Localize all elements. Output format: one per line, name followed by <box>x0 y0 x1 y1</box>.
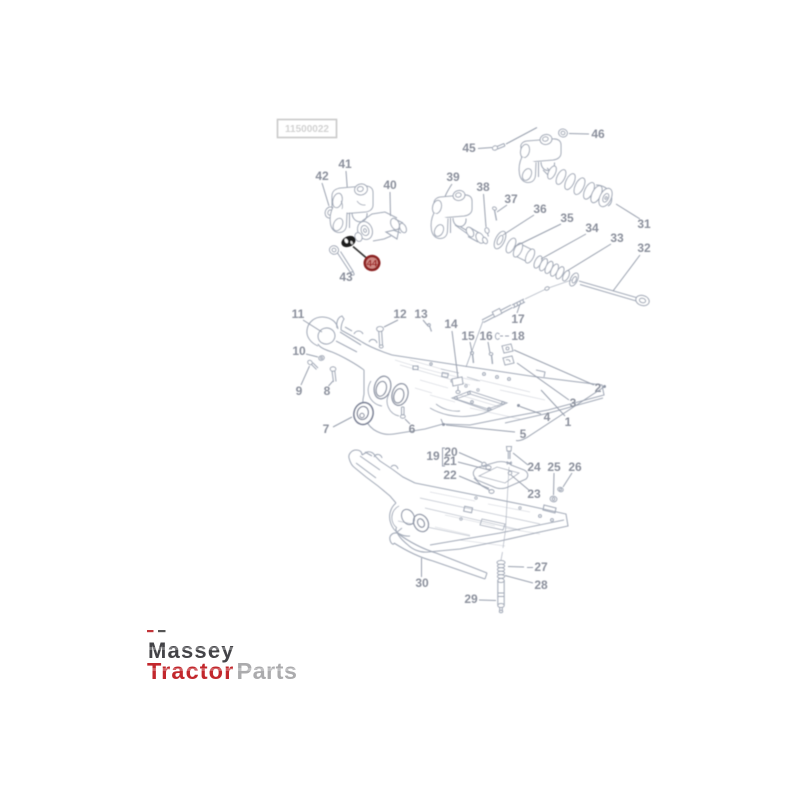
svg-text:38: 38 <box>476 180 490 194</box>
svg-text:27: 27 <box>534 560 548 574</box>
svg-text:29: 29 <box>464 592 478 606</box>
svg-text:36: 36 <box>533 202 547 216</box>
svg-text:11: 11 <box>292 307 305 321</box>
svg-text:40: 40 <box>383 178 397 192</box>
svg-text:23: 23 <box>527 487 541 501</box>
svg-text:14: 14 <box>444 317 458 331</box>
svg-text:18: 18 <box>511 329 525 343</box>
svg-text:19: 19 <box>426 449 440 463</box>
svg-text:8: 8 <box>324 384 331 398</box>
svg-text:37: 37 <box>504 192 518 206</box>
svg-text:13: 13 <box>414 307 428 321</box>
svg-text:25: 25 <box>547 460 561 474</box>
svg-text:21: 21 <box>443 454 457 468</box>
svg-text:35: 35 <box>560 211 574 225</box>
svg-text:32: 32 <box>637 241 651 255</box>
svg-text:12: 12 <box>393 307 407 321</box>
svg-text:26: 26 <box>568 460 582 474</box>
svg-text:10: 10 <box>292 344 306 358</box>
svg-text:17: 17 <box>511 312 525 326</box>
svg-text:30: 30 <box>415 576 429 590</box>
svg-text:28: 28 <box>534 578 548 592</box>
svg-text:39: 39 <box>446 170 460 184</box>
svg-text:3: 3 <box>570 396 577 410</box>
svg-text:7: 7 <box>323 422 330 436</box>
svg-text:11500022: 11500022 <box>285 124 329 135</box>
svg-text:45: 45 <box>462 141 476 155</box>
svg-text:22: 22 <box>443 468 457 482</box>
svg-text:15: 15 <box>461 329 475 343</box>
svg-text:42: 42 <box>315 169 329 183</box>
svg-text:4: 4 <box>544 410 551 424</box>
svg-text:41: 41 <box>338 157 352 171</box>
svg-text:16: 16 <box>479 329 493 343</box>
svg-text:44: 44 <box>367 259 378 270</box>
svg-text:1: 1 <box>565 415 572 429</box>
svg-text:9: 9 <box>296 384 303 398</box>
svg-text:43: 43 <box>339 270 353 284</box>
svg-text:33: 33 <box>610 231 624 245</box>
svg-text:34: 34 <box>585 221 599 235</box>
svg-text:24: 24 <box>527 460 541 474</box>
svg-text:46: 46 <box>591 127 605 141</box>
